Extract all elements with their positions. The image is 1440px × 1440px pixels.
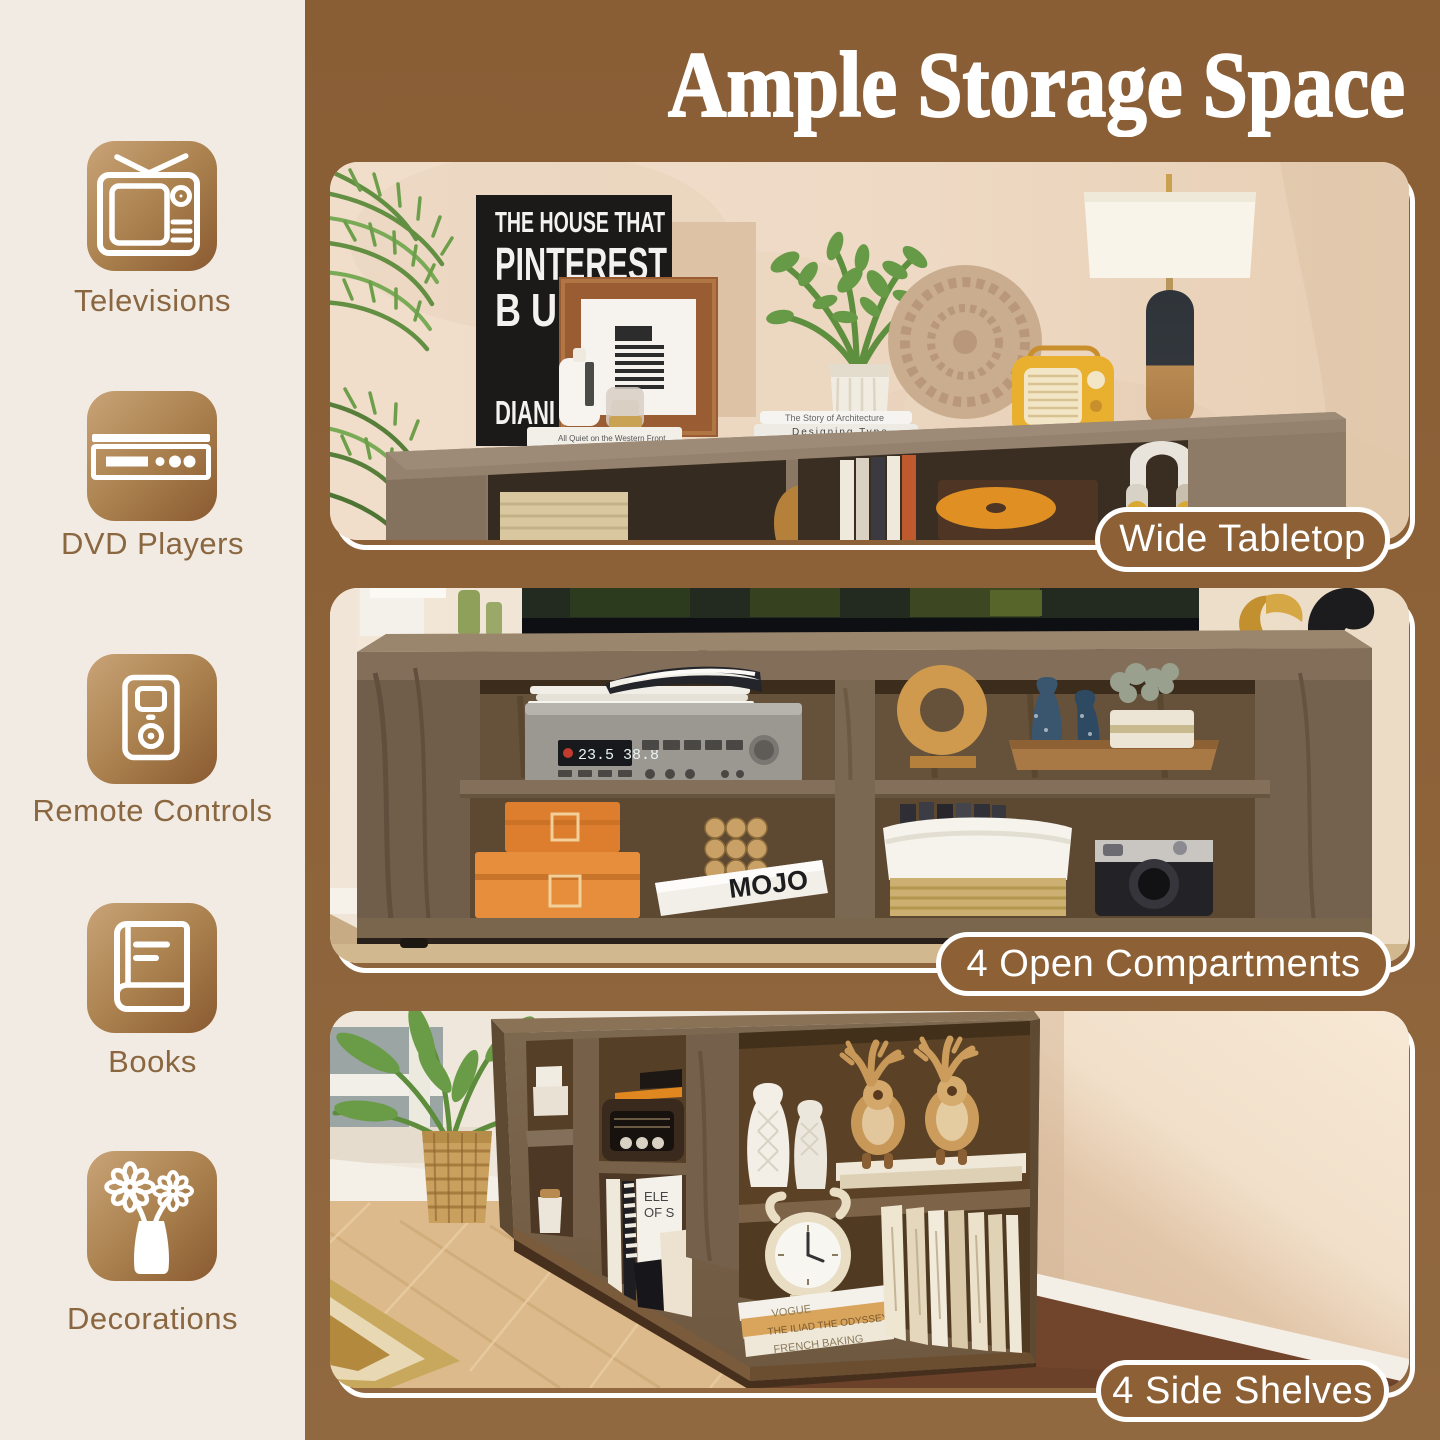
- svg-text:B U: B U: [495, 284, 557, 336]
- svg-text:The Story of Architecture: The Story of Architecture: [785, 413, 884, 423]
- svg-text:DIANI: DIANI: [495, 394, 555, 431]
- svg-text:OF S: OF S: [644, 1205, 675, 1220]
- svg-text:THE HOUSE THAT: THE HOUSE THAT: [495, 207, 665, 239]
- svg-text:ELE: ELE: [644, 1189, 669, 1204]
